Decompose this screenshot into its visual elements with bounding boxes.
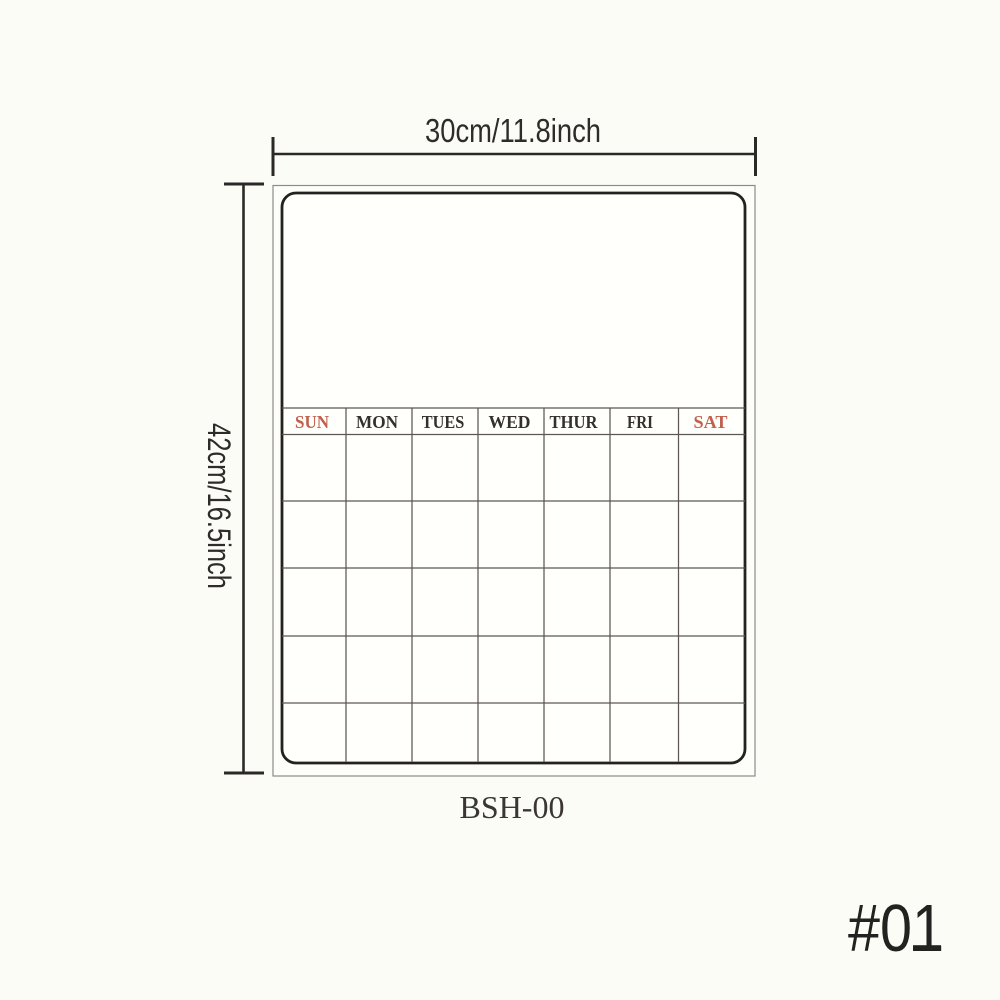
svg-text:FRI: FRI xyxy=(627,412,653,432)
svg-text:WED: WED xyxy=(489,412,531,432)
svg-text:SUN: SUN xyxy=(295,412,329,432)
svg-text:30cm/11.8inch: 30cm/11.8inch xyxy=(425,112,601,149)
svg-text:THUR: THUR xyxy=(550,412,599,432)
svg-text:MON: MON xyxy=(356,412,398,432)
svg-text:42cm/16.5inch: 42cm/16.5inch xyxy=(201,423,237,589)
svg-text:TUES: TUES xyxy=(422,412,465,432)
svg-text:#01: #01 xyxy=(848,891,944,966)
svg-text:SAT: SAT xyxy=(694,412,728,432)
svg-text:BSH-00: BSH-00 xyxy=(460,789,565,825)
